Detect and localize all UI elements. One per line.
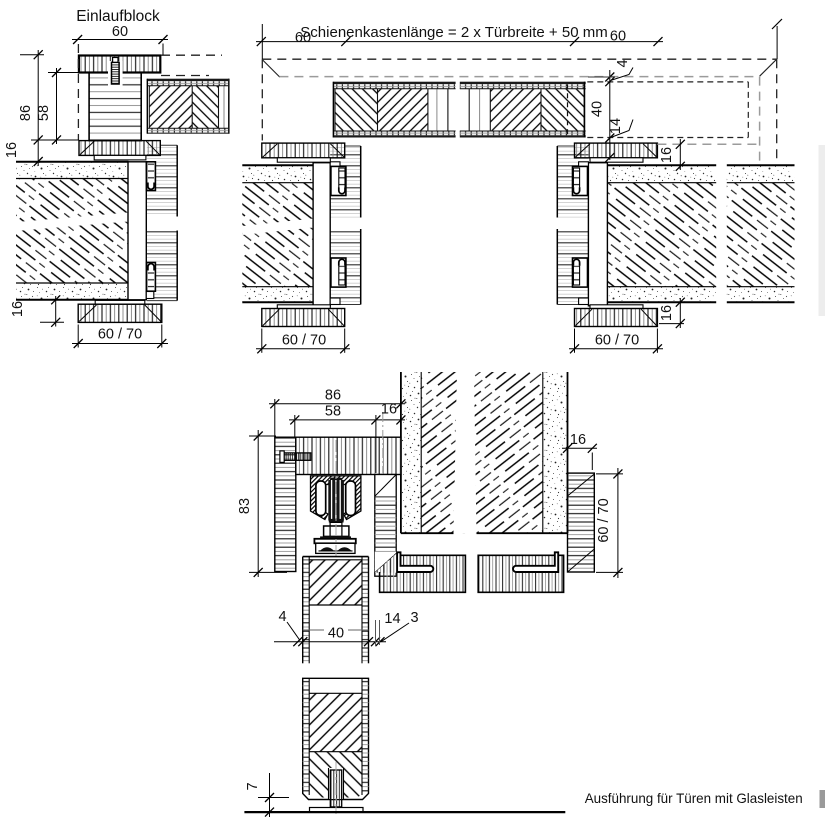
- svg-text:Ausführung für Türen mit Glasl: Ausführung für Türen mit Glasleisten: [585, 790, 803, 806]
- svg-text:60 / 70: 60 / 70: [596, 498, 612, 542]
- svg-text:58: 58: [36, 105, 52, 121]
- svg-text:16: 16: [4, 142, 20, 158]
- svg-text:60: 60: [112, 24, 128, 40]
- svg-text:60 / 70: 60 / 70: [282, 333, 326, 349]
- svg-text:60: 60: [295, 30, 311, 46]
- svg-text:58: 58: [325, 404, 341, 420]
- svg-text:16: 16: [10, 301, 26, 317]
- svg-text:16: 16: [659, 305, 675, 321]
- svg-text:60 / 70: 60 / 70: [98, 327, 142, 343]
- svg-text:40: 40: [328, 626, 344, 642]
- svg-text:60 / 70: 60 / 70: [595, 333, 639, 349]
- svg-text:7: 7: [245, 782, 261, 790]
- svg-text:16: 16: [570, 432, 586, 448]
- svg-text:16: 16: [659, 147, 675, 163]
- svg-text:4: 4: [278, 609, 286, 625]
- svg-text:86: 86: [18, 105, 34, 121]
- svg-text:14: 14: [384, 611, 400, 627]
- svg-text:60: 60: [610, 29, 626, 45]
- svg-text:3: 3: [410, 610, 418, 626]
- svg-text:83: 83: [237, 498, 253, 514]
- svg-text:40: 40: [590, 101, 606, 117]
- svg-text:4: 4: [615, 59, 631, 67]
- svg-text:86: 86: [325, 388, 341, 404]
- svg-text:Einlaufblock: Einlaufblock: [76, 8, 160, 25]
- svg-text:14: 14: [608, 118, 624, 134]
- svg-text:Schienenkastenlänge = 2 x Türb: Schienenkastenlänge = 2 x Türbreite + 50…: [300, 24, 607, 41]
- svg-text:16: 16: [381, 402, 397, 418]
